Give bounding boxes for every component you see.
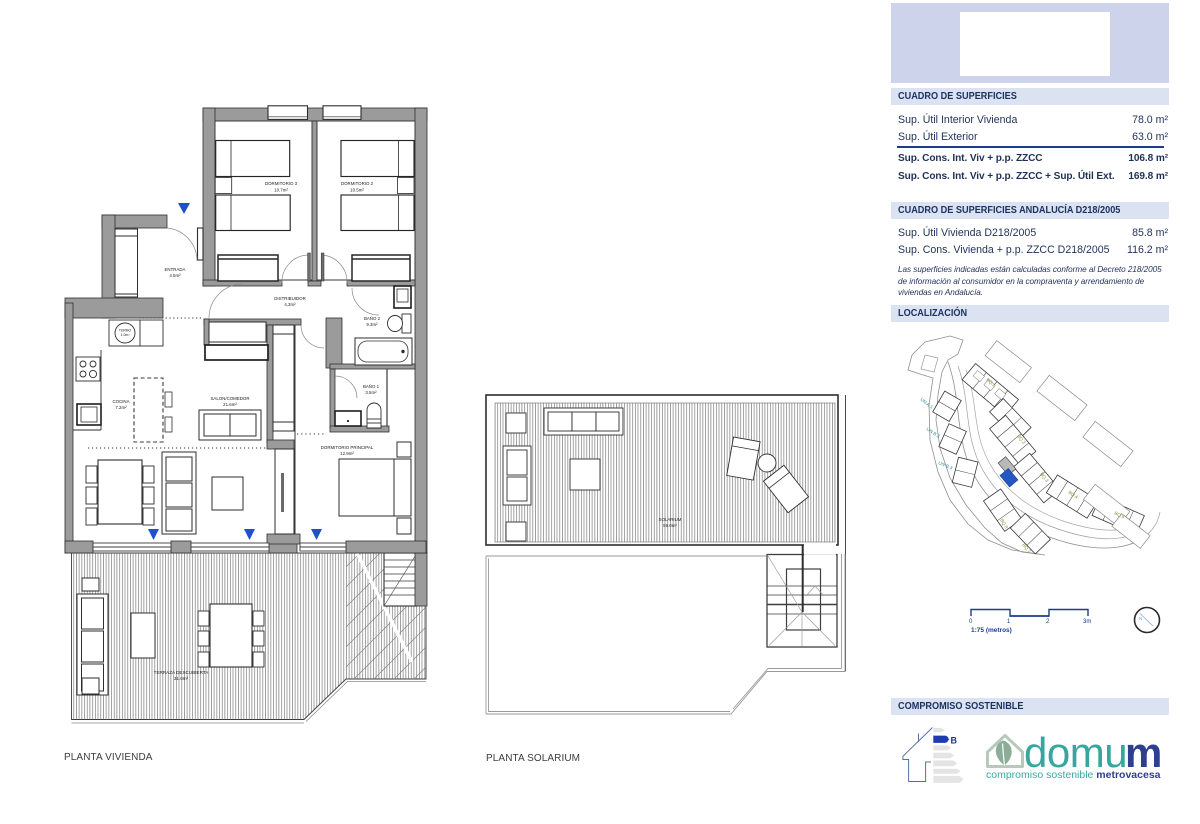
svg-text:N: N bbox=[1139, 616, 1142, 621]
svg-text:ENTRADA: ENTRADA bbox=[165, 267, 186, 272]
svg-text:7.2m²: 7.2m² bbox=[115, 405, 127, 410]
svg-text:21.6m²: 21.6m² bbox=[223, 402, 237, 407]
svg-text:1:75 (metros): 1:75 (metros) bbox=[971, 627, 1012, 634]
svg-text:31.0m²: 31.0m² bbox=[174, 676, 189, 681]
svg-text:COCINA: COCINA bbox=[112, 399, 129, 404]
svg-text:TERRAZA DESCUBIERTA: TERRAZA DESCUBIERTA bbox=[154, 670, 210, 675]
svg-text:1.0m²: 1.0m² bbox=[121, 333, 131, 337]
svg-text:10.5m²: 10.5m² bbox=[350, 188, 364, 193]
svg-text:SALON/COMEDOR: SALON/COMEDOR bbox=[210, 396, 249, 401]
svg-text:1: 1 bbox=[1007, 619, 1011, 625]
svg-text:10.7m²: 10.7m² bbox=[274, 188, 288, 193]
svg-text:4.5m²: 4.5m² bbox=[169, 273, 181, 278]
svg-text:SOLARIUM: SOLARIUM bbox=[659, 517, 682, 522]
svg-text:3.5m²: 3.5m² bbox=[365, 390, 377, 395]
svg-text:3m: 3m bbox=[1083, 619, 1091, 625]
svg-text:12.9m²: 12.9m² bbox=[340, 451, 354, 456]
svg-text:4,3m²: 4,3m² bbox=[284, 302, 296, 307]
svg-text:BAÑO 2: BAÑO 2 bbox=[364, 316, 381, 321]
svg-text:DORMITORIO 2: DORMITORIO 2 bbox=[341, 181, 374, 186]
svg-text:9.3m²: 9.3m² bbox=[366, 322, 378, 327]
svg-text:2: 2 bbox=[1046, 619, 1050, 625]
svg-text:DORMITORIO 3: DORMITORIO 3 bbox=[265, 181, 298, 186]
svg-text:59.0m²: 59.0m² bbox=[663, 523, 677, 528]
svg-text:B: B bbox=[951, 736, 958, 746]
svg-text:0: 0 bbox=[969, 619, 973, 625]
svg-text:DORMITORIO PRINCIPAL: DORMITORIO PRINCIPAL bbox=[321, 445, 374, 450]
svg-text:compromiso sostenible metrovac: compromiso sostenible metrovacesa bbox=[986, 769, 1161, 781]
svg-text:TERMO: TERMO bbox=[119, 329, 132, 333]
svg-text:DISTRIBUIDOR: DISTRIBUIDOR bbox=[274, 296, 305, 301]
svg-text:BAÑO 1: BAÑO 1 bbox=[363, 384, 380, 389]
